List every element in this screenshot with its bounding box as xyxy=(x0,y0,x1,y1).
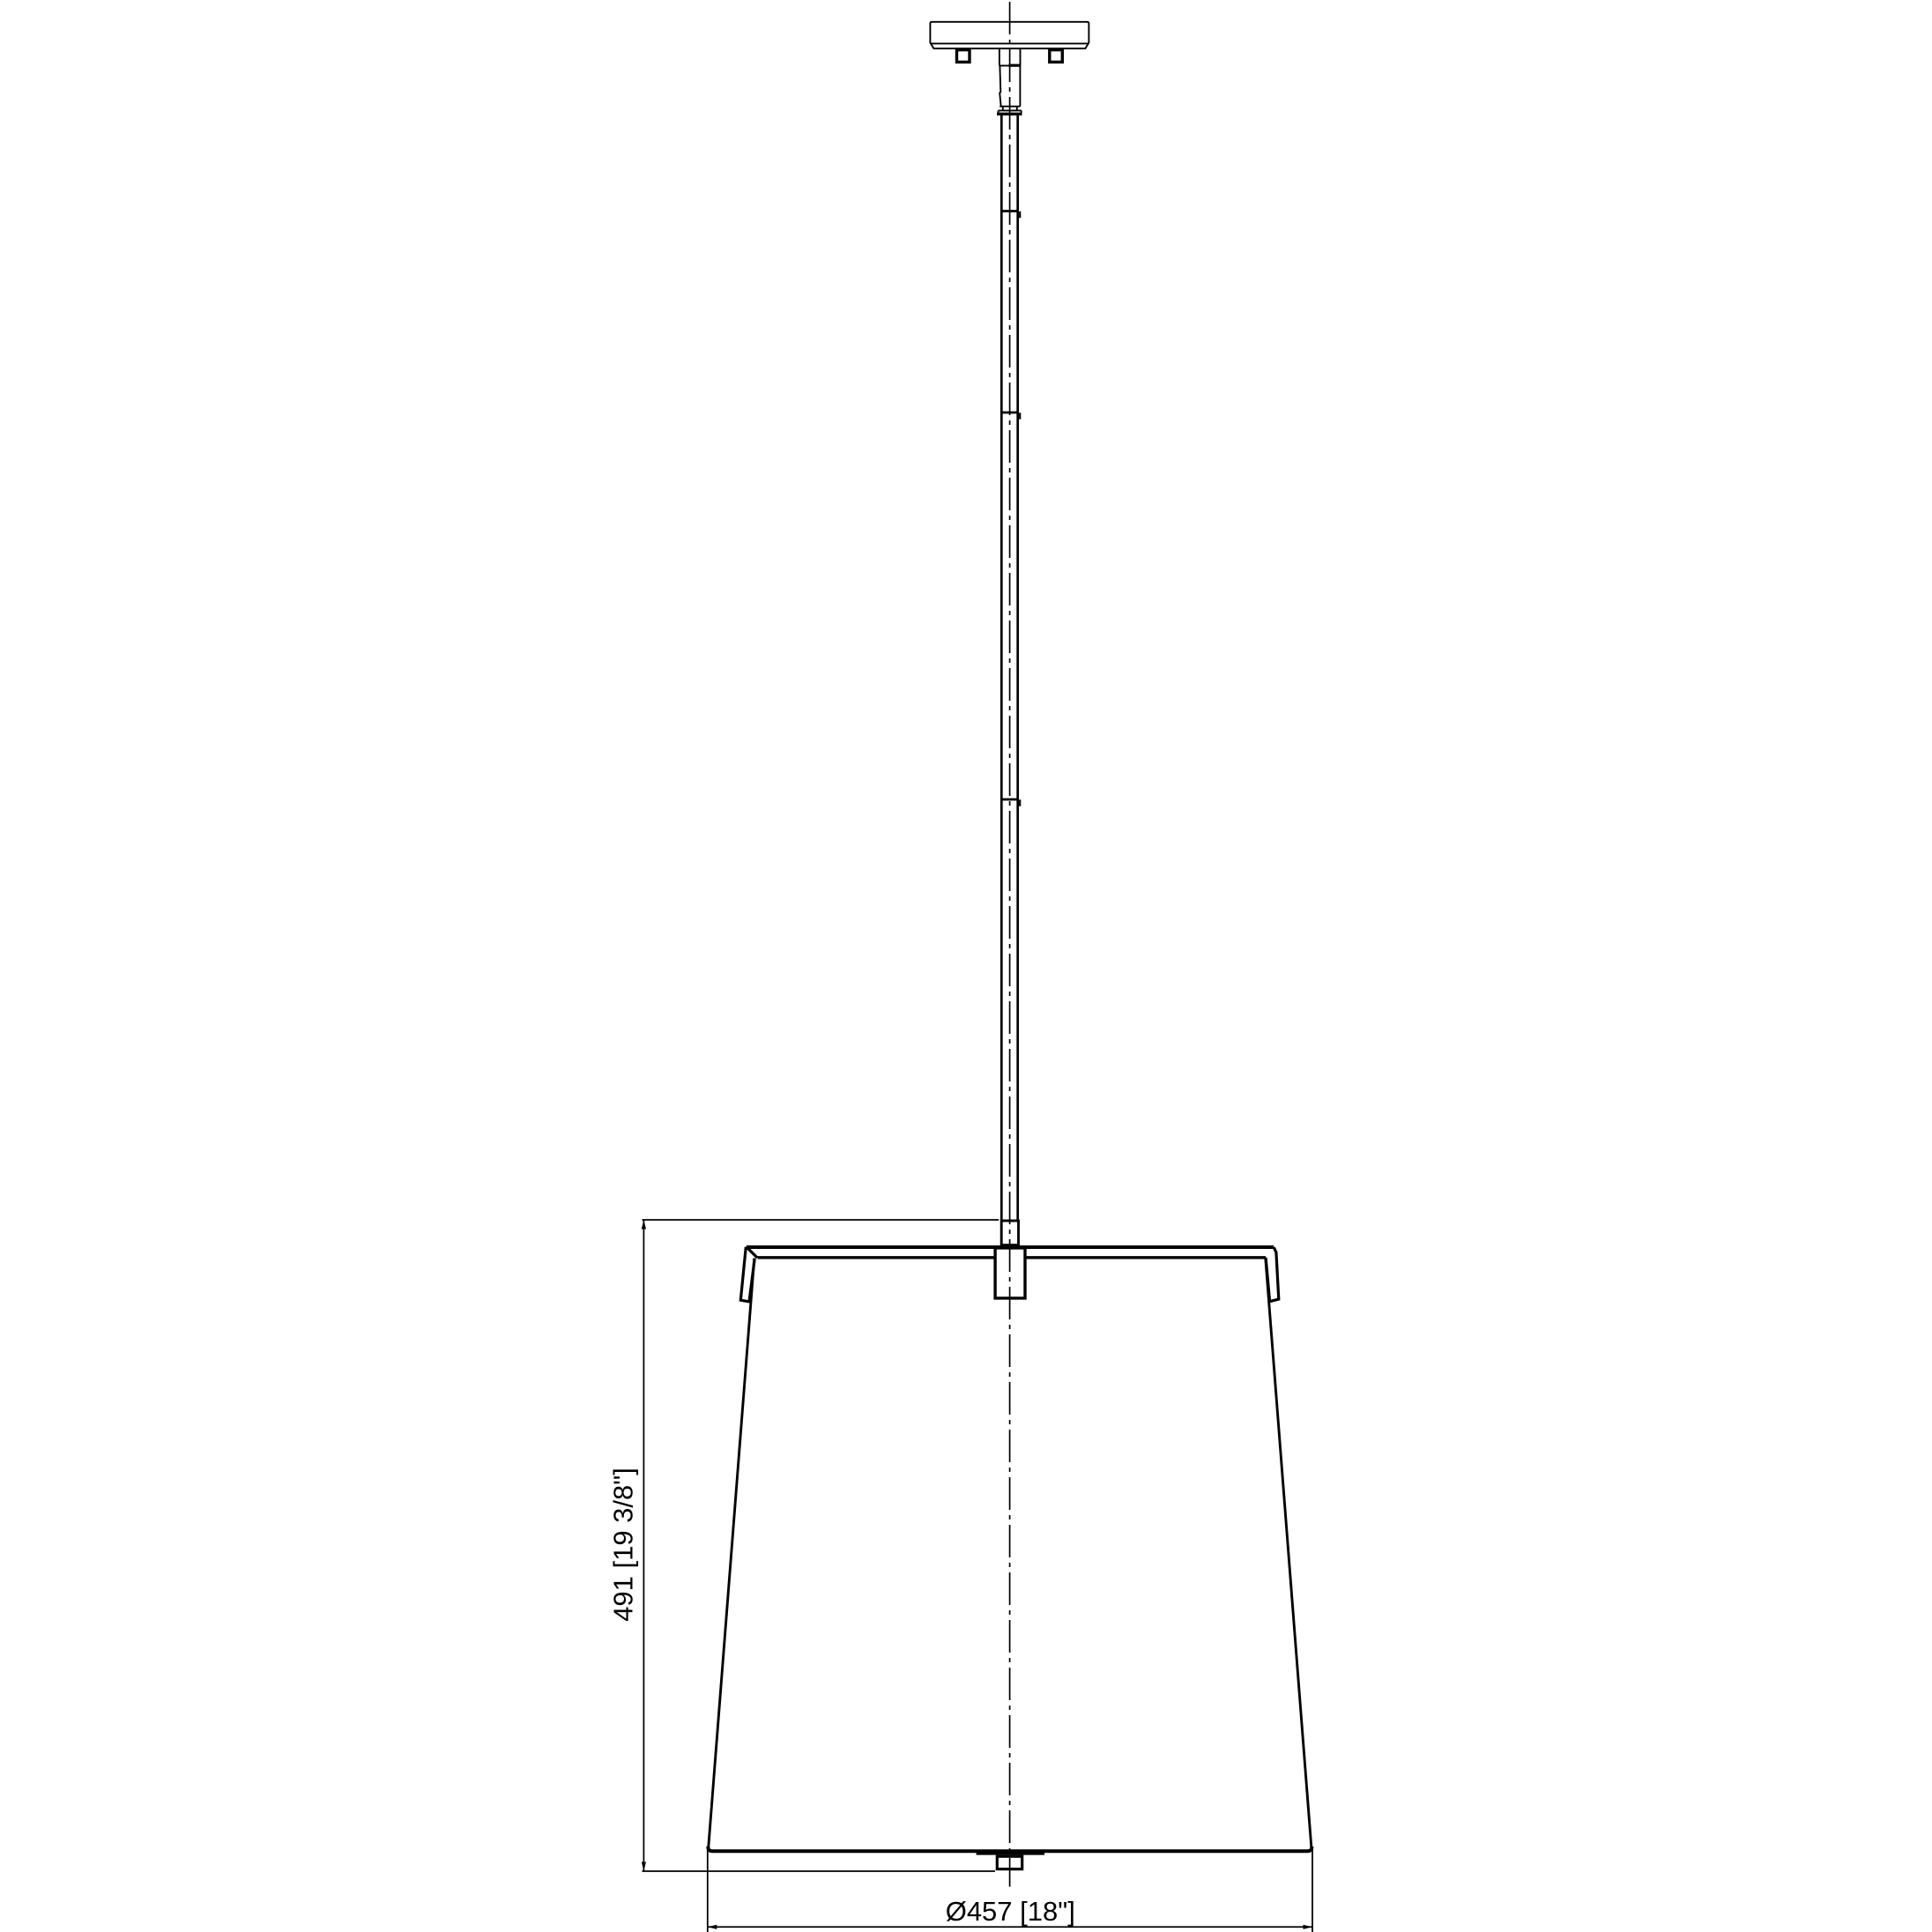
svg-text:Ø457 [18"]: Ø457 [18"] xyxy=(946,1896,1075,1927)
svg-text:491 [19 3/8"]: 491 [19 3/8"] xyxy=(608,1468,639,1622)
